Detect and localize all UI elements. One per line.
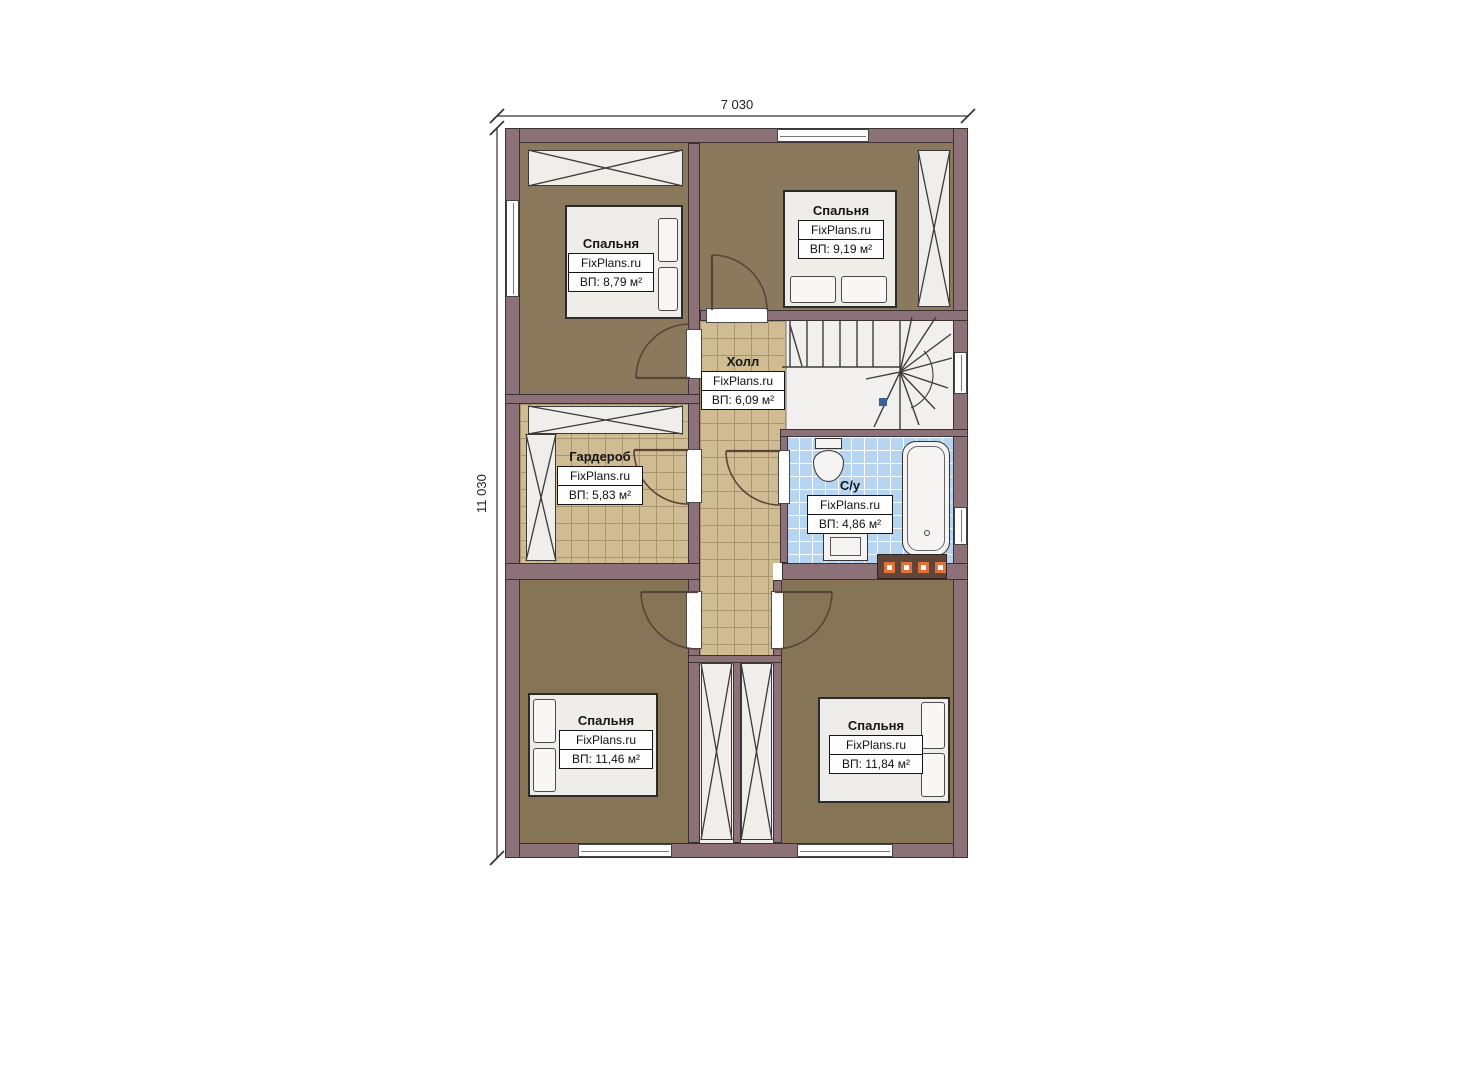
watermark: FixPlans.ru	[798, 220, 884, 240]
room-area: ВП: 11,84 м²	[829, 754, 923, 774]
wall-exterior-bottom	[505, 843, 968, 858]
watermark: FixPlans.ru	[829, 735, 923, 755]
vent-cell	[935, 562, 946, 573]
pillow	[921, 753, 945, 797]
room-floor-hall-corridor	[700, 563, 773, 655]
room-name: Холл	[701, 354, 785, 369]
watermark: FixPlans.ru	[557, 466, 643, 486]
wall-middle-left	[505, 563, 700, 580]
room-name: Спальня	[829, 718, 923, 733]
room-label-bedroom-top-right: Спальня FixPlans.ru ВП: 9,19 м²	[798, 203, 884, 259]
closet-niche-left	[701, 663, 732, 840]
pillow	[790, 276, 836, 303]
door-opening-bedroom-bottom-left	[686, 591, 702, 649]
wall-bedroomTL-wardrobe	[505, 394, 700, 404]
dimension-height-label: 11 030	[474, 458, 489, 530]
sink-basin	[830, 537, 861, 556]
closet-bedroom-top-left	[528, 150, 683, 186]
door-opening-wardrobe	[686, 449, 702, 503]
stairwell-floor	[786, 321, 953, 429]
floor-plan-canvas: 7 030 11 030 Спальня FixPlans.ru ВП: 8,7…	[0, 0, 1473, 1080]
pillow	[921, 702, 945, 749]
closet-niche-right	[741, 663, 772, 840]
watermark: FixPlans.ru	[807, 495, 893, 515]
room-floor-hall-mid	[700, 429, 780, 563]
window-right-bath	[954, 507, 967, 545]
toilet-tank	[815, 438, 842, 449]
bathtub	[902, 441, 950, 556]
sink	[823, 533, 868, 561]
wall-closet-divider	[733, 655, 741, 843]
door-opening-bedroom-top-right	[706, 308, 768, 323]
door-opening-bedroom-top-left	[686, 329, 702, 379]
room-label-hall: Холл FixPlans.ru ВП: 6,09 м²	[701, 354, 785, 410]
window-bottom-left	[578, 844, 672, 857]
window-right-stairs	[954, 352, 967, 394]
wall-corridor-end	[688, 655, 782, 663]
room-name: Спальня	[559, 713, 653, 728]
vent-cell	[918, 562, 929, 573]
room-name: С/у	[807, 478, 893, 493]
dimension-width-label: 7 030	[702, 97, 772, 112]
watermark: FixPlans.ru	[568, 253, 654, 273]
room-label-bedroom-top-left: Спальня FixPlans.ru ВП: 8,79 м²	[568, 236, 654, 292]
room-label-bedroom-bottom-right: Спальня FixPlans.ru ВП: 11,84 м²	[829, 718, 923, 774]
room-area: ВП: 6,09 м²	[701, 390, 785, 410]
pillow	[841, 276, 887, 303]
door-opening-bathroom	[778, 450, 790, 504]
door-opening-bedroom-bottom-right	[771, 591, 784, 649]
room-name: Спальня	[568, 236, 654, 251]
wall-exterior-right	[953, 128, 968, 858]
closet-wardrobe-left	[526, 434, 556, 561]
window-top-wall	[777, 129, 869, 142]
room-label-wardrobe: Гардероб FixPlans.ru ВП: 5,83 м²	[557, 449, 643, 505]
vent-cell	[901, 562, 912, 573]
watermark: FixPlans.ru	[559, 730, 653, 750]
pillow	[533, 748, 556, 792]
window-left-wall	[506, 200, 519, 297]
pillow	[658, 218, 678, 262]
room-area: ВП: 4,86 м²	[807, 514, 893, 534]
room-label-bathroom: С/у FixPlans.ru ВП: 4,86 м²	[807, 478, 893, 534]
pillow	[533, 699, 556, 743]
wall-stairs-bathroom	[780, 429, 968, 437]
room-area: ВП: 8,79 м²	[568, 272, 654, 292]
pillow	[658, 267, 678, 311]
watermark: FixPlans.ru	[701, 371, 785, 391]
vent-block	[877, 554, 947, 579]
bathtub-drain	[924, 530, 930, 536]
room-area: ВП: 9,19 м²	[798, 239, 884, 259]
room-name: Спальня	[798, 203, 884, 218]
closet-wardrobe-top	[528, 406, 683, 434]
room-area: ВП: 11,46 м²	[559, 749, 653, 769]
room-area: ВП: 5,83 м²	[557, 485, 643, 505]
window-bottom-right	[797, 844, 893, 857]
vent-cell	[884, 562, 895, 573]
closet-bedroom-top-right	[918, 150, 950, 307]
wall-exterior-top	[505, 128, 968, 143]
room-name: Гардероб	[557, 449, 643, 464]
room-label-bedroom-bottom-left: Спальня FixPlans.ru ВП: 11,46 м²	[559, 713, 653, 769]
